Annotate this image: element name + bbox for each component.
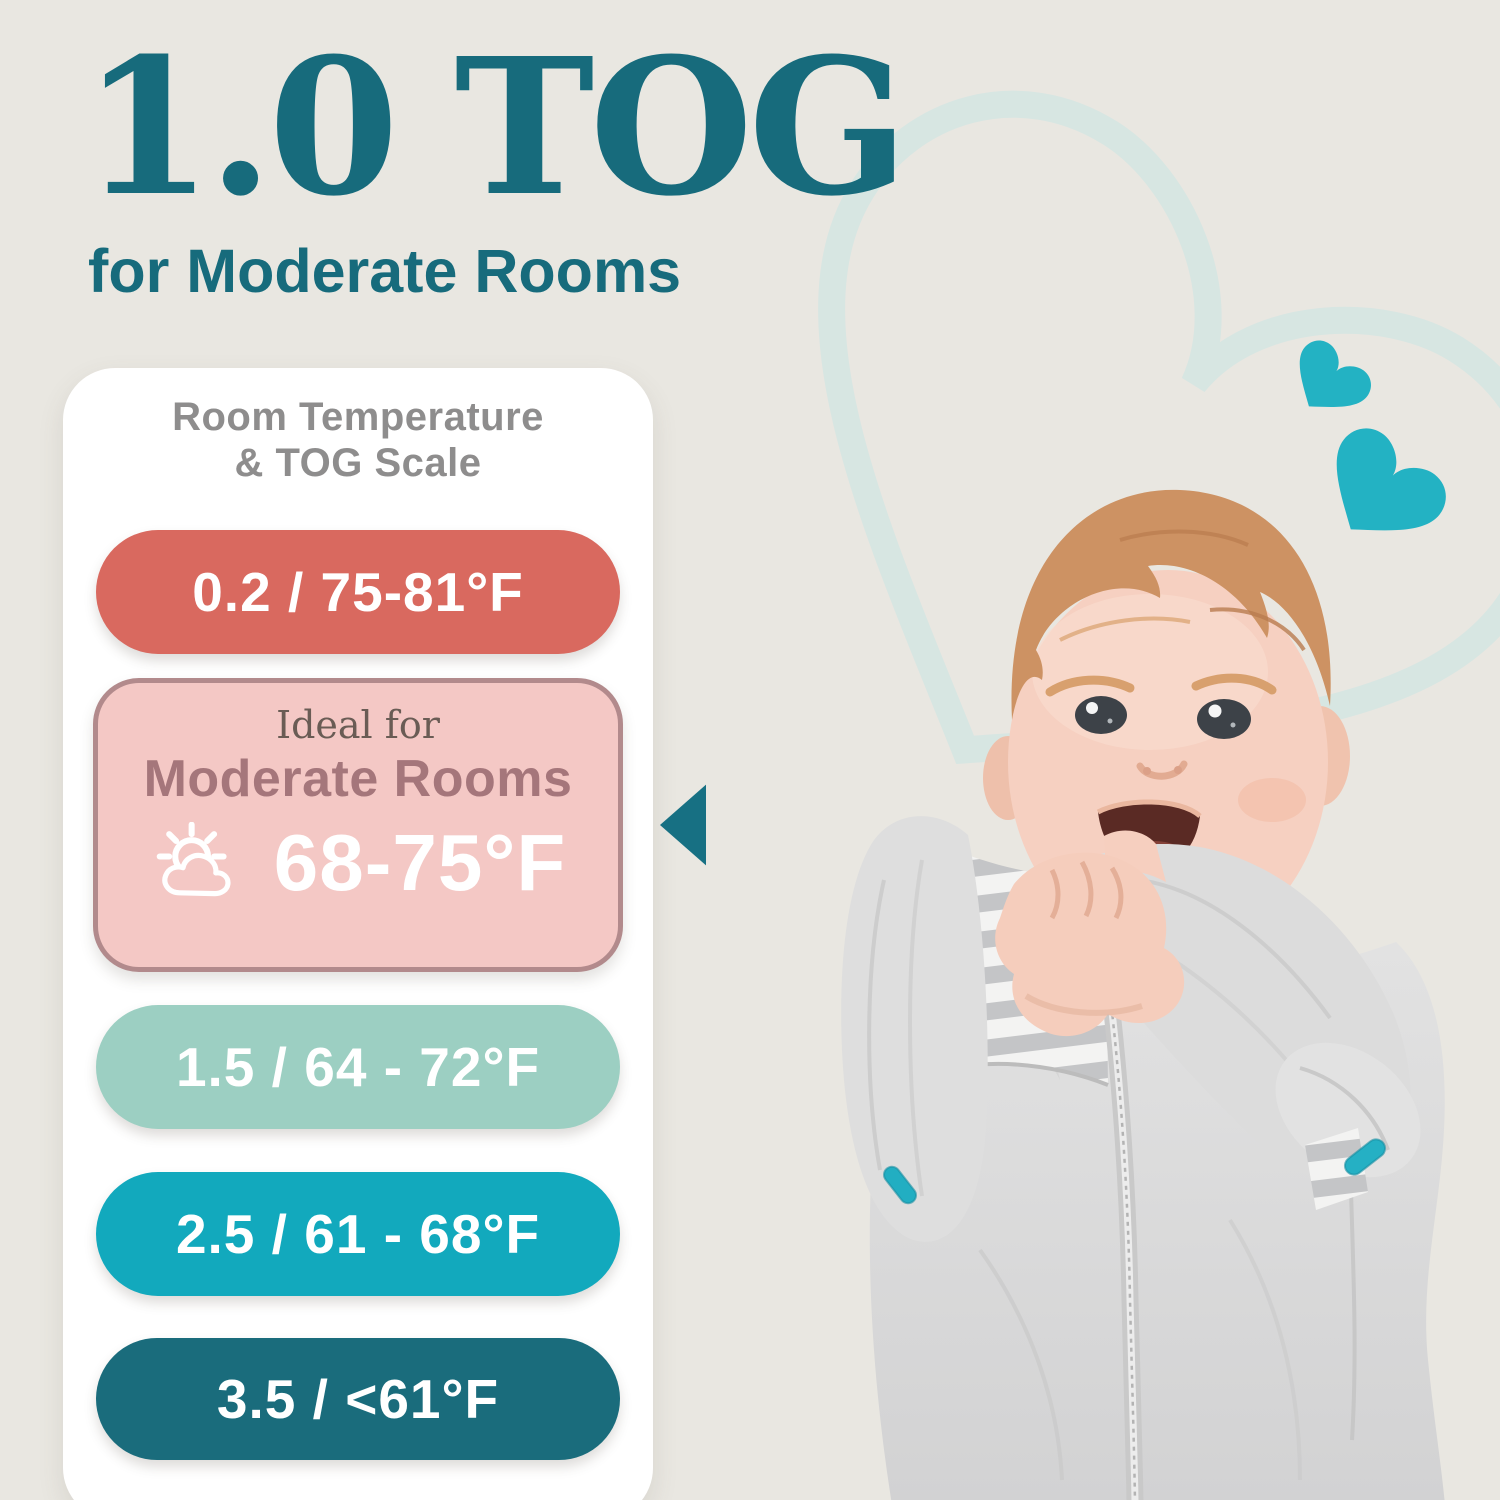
- tog-scale-card: Room Temperature & TOG Scale 0.2 / 75-81…: [63, 368, 653, 1500]
- tog-row-3-5: 3.5 / <61°F: [96, 1338, 620, 1460]
- swaddle-wing-left: [841, 816, 988, 1242]
- heart-icon-small: [1278, 333, 1379, 431]
- ideal-temp-row: 68-75°F: [98, 817, 618, 909]
- tog-row-2-5-label: 2.5 / 61 - 68°F: [176, 1202, 540, 1266]
- heart-icon-large: [1303, 417, 1457, 567]
- tog-row-0-2-label: 0.2 / 75-81°F: [192, 560, 524, 624]
- tog-row-2-5: 2.5 / 61 - 68°F: [96, 1172, 620, 1296]
- ideal-eyebrow: Ideal for: [98, 703, 618, 747]
- tog-subtitle: for Moderate Rooms: [88, 236, 681, 306]
- ideal-room-callout: Ideal for Moderate Rooms 68-75°F: [93, 678, 623, 972]
- tog-row-3-5-label: 3.5 / <61°F: [217, 1367, 499, 1431]
- baby-hand: [995, 830, 1184, 1036]
- product-infographic: 1.0 TOG for Moderate Rooms Room Temperat…: [0, 0, 1500, 1500]
- card-heading-line1: Room Temperature: [63, 394, 653, 440]
- ideal-temperature: 68-75°F: [274, 817, 566, 909]
- tog-row-0-2: 0.2 / 75-81°F: [96, 530, 620, 654]
- tog-row-1-5-label: 1.5 / 64 - 72°F: [176, 1035, 540, 1099]
- card-heading: Room Temperature & TOG Scale: [63, 394, 653, 487]
- sun-behind-cloud-icon: [150, 822, 254, 904]
- tog-rating-title: 1.0 TOG: [82, 30, 904, 226]
- baby-eye-right: [1197, 699, 1251, 739]
- baby-eye-left: [1075, 696, 1127, 734]
- card-heading-line2: & TOG Scale: [63, 440, 653, 486]
- tog-row-1-5: 1.5 / 64 - 72°F: [96, 1005, 620, 1129]
- baby-cheek-blush: [1238, 778, 1306, 822]
- ideal-room-type: Moderate Rooms: [98, 749, 618, 809]
